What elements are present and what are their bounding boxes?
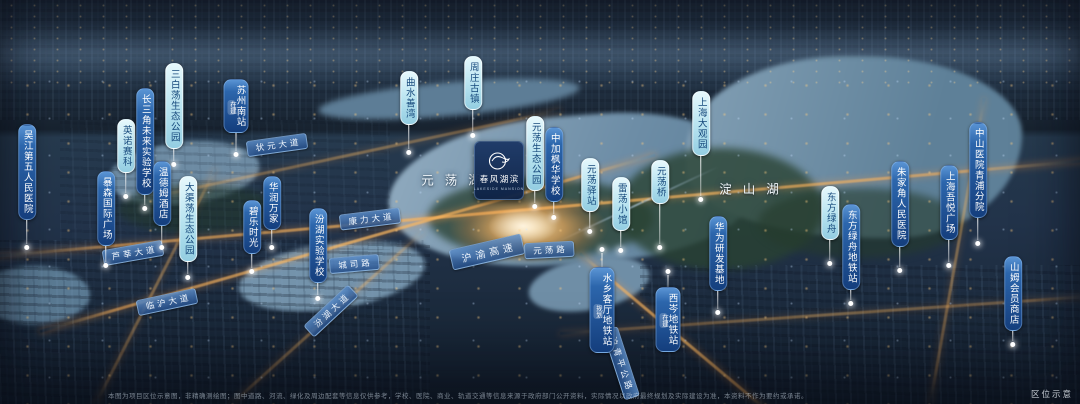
leader-line [554,202,555,214]
poi-status-tag: 在建 [228,100,236,115]
poi-label-box: 朱家角人民医院 [891,161,909,247]
poi-label-box: 吴江第五人民医院 [18,124,36,220]
poi-label: 英诺赛科 [117,119,135,200]
location-map: 春风湖滨 LAKESIDE MANSION 元荡湖淀山湖 状元大道康力大道城司路… [0,0,1080,404]
poi-label: 华润万家 [263,176,281,251]
disclaimer-text: 本图为项目区位示意图，非精确测绘图；图中道路、河流、绿化及周边配套等信息仅供参考… [108,390,808,400]
poi-label-text: 汾湖实验学校 [313,214,323,277]
location-dot-icon [1011,342,1016,347]
location-dot-icon [600,247,605,252]
poi-label-text: 元荡驿站 [585,164,595,206]
location-dot-icon [658,245,663,250]
leader-line [535,191,536,203]
road-label: 状元大道 [246,133,309,157]
poi-label: 大渠荡生态公园 [179,176,197,281]
poi-label-text: 周庄古镇 [468,62,478,104]
poi-label-box: 大渠荡生态公园 [179,176,197,262]
poi-label: 山姆会员商店 [1004,256,1022,348]
leader-line [602,253,603,267]
poi-label-text: 东方绿舟地铁站 [846,210,856,284]
location-dot-icon [160,245,165,250]
poi-label-text: 华为研发基地 [713,222,723,285]
poi-label: 中加枫华学校 [545,127,563,221]
leader-line [236,133,237,151]
poi-label: 上海吾悦广场 [940,165,958,269]
poi-label-text: 元荡生态公园 [530,122,540,185]
poi-label: 元荡驿站 [581,158,599,235]
poi-label: 长三角未来实验学校 [136,88,154,212]
poi-label: 东方绿舟地铁站 [842,204,860,307]
leader-line [162,226,163,244]
poi-label-box: 长三角未来实验学校 [136,88,154,195]
poi-label-box: 中山医院青浦分院 [969,122,987,218]
leader-line [188,262,189,274]
leader-line [27,220,28,244]
location-dot-icon [124,194,129,199]
location-dot-icon [947,263,952,268]
location-dot-icon [898,268,903,273]
poi-label-box: 山姆会员商店 [1004,256,1022,331]
poi-label-box: 中加枫华学校 [545,127,563,202]
location-dot-icon [828,261,833,266]
poi-label: 暴森国际广场 [97,171,115,269]
location-dot-icon [104,263,109,268]
poi-label: 曲水善湾 [400,71,418,156]
leader-line [145,195,146,205]
leader-line [621,231,622,247]
project-name: 春风湖滨 [478,173,520,185]
poi-label-box: 曲水善湾 [400,71,418,125]
project-name-en: LAKESIDE MANSION [474,187,524,191]
leader-line [660,204,661,244]
poi-label-box: 雷荡小馆 [612,177,630,231]
poi-label-text: 元荡桥 [655,166,665,198]
park-east-shore [758,188,963,258]
poi-label: 吴江第五人民医院 [18,124,36,251]
location-dot-icon [172,162,177,167]
poi-label-text: 英诺赛科 [121,125,131,167]
leader-line [106,246,107,262]
poi-label-box: 苏州南站在建 [224,79,249,133]
poi-label-box: 温德姆酒店 [153,161,171,226]
leader-line [252,254,253,268]
leader-line [590,212,591,228]
leader-line [473,110,474,132]
poi-label-text: 三白荡生态公园 [169,69,179,143]
poi-label-text: 华润万家 [267,182,277,224]
poi-label: 元荡生态公园 [526,116,544,210]
poi-label-text: 水乡客厅地铁站 [601,273,611,347]
location-dot-icon [25,245,30,250]
leader-line [174,149,175,161]
poi-label-text: 朱家角人民医院 [895,167,905,241]
leader-line [851,290,852,300]
location-dot-icon [143,206,148,211]
poi-label: 碧乐时光 [243,200,261,275]
poi-label-text: 雷荡小馆 [616,183,626,225]
leader-line [718,291,719,309]
location-dot-icon [250,269,255,274]
poi-label-text: 上海大观园 [696,97,706,150]
location-dot-icon [666,269,671,274]
poi-status-tag: 规划 [594,304,602,319]
poi-label-box: 华为研发基地 [709,216,727,291]
poi-label: 苏州南站在建 [224,79,249,158]
poi-label-text: 碧乐时光 [247,206,257,248]
pond-left-edge-water [0,266,90,324]
location-dot-icon [471,133,476,138]
poi-label-box: 三白荡生态公园 [165,63,183,149]
leader-line [949,240,950,262]
location-dot-icon [552,215,557,220]
location-dot-icon [186,275,191,280]
poi-label: 汾湖实验学校 [309,208,327,302]
leader-line [668,275,669,287]
leader-line [830,240,831,260]
poi-label-text: 曲水善湾 [404,77,414,119]
leader-line [272,230,273,244]
poi-label-text: 吴江第五人民医院 [22,130,32,214]
location-dot-icon [716,310,721,315]
poi-label-box: 华润万家 [263,176,281,230]
poi-label: 元荡桥 [651,160,669,251]
poi-label: 周庄古镇 [464,56,482,139]
poi-label-text: 山姆会员商店 [1008,262,1018,325]
location-dot-icon [407,150,412,155]
poi-label: 上海大观园 [692,91,710,203]
poi-label-box: 上海吾悦广场 [940,165,958,240]
road-label: 元荡路 [524,241,574,260]
location-dot-icon [588,229,593,234]
road-label: 临沪大道 [135,288,198,316]
poi-label: 西岑地铁站在建 [656,268,681,352]
poi-label-text: 东方绿舟 [825,192,835,234]
lake-name: 淀山湖 [708,179,790,198]
leader-line [978,218,979,240]
location-dot-icon [270,245,275,250]
poi-label-box: 上海大观园 [692,91,710,156]
leader-line [701,156,702,196]
poi-label: 水乡客厅地铁站规划 [590,246,615,353]
leader-line [409,125,410,149]
swan-logo-icon [487,151,511,171]
leader-line [126,173,127,193]
poi-label-box: 英诺赛科 [117,119,135,173]
leader-line [1013,331,1014,341]
poi-label-box: 东方绿舟 [821,186,839,240]
location-dot-icon [699,197,704,202]
leader-line [900,247,901,267]
poi-label-box: 东方绿舟地铁站 [842,204,860,290]
poi-label-box: 水乡客厅地铁站规划 [590,267,615,353]
poi-label: 朱家角人民医院 [891,161,909,274]
poi-label-text: 苏州南站 [235,85,245,127]
poi-label-text: 中山医院青浦分院 [973,128,983,212]
poi-label-box: 汾湖实验学校 [309,208,327,283]
location-dot-icon [234,152,239,157]
poi-label: 华为研发基地 [709,216,727,316]
poi-label-text: 上海吾悦广场 [944,171,954,234]
poi-label-box: 暴森国际广场 [97,171,115,246]
leader-line [318,283,319,295]
poi-label: 中山医院青浦分院 [969,122,987,247]
road-label: 康力大道 [339,207,402,230]
poi-label: 温德姆酒店 [153,161,171,251]
poi-label-box: 碧乐时光 [243,200,261,254]
poi-label-text: 中加枫华学校 [549,133,559,196]
poi-label: 雷荡小馆 [612,177,630,254]
poi-label-text: 长三角未来实验学校 [140,94,150,189]
project-logo-card: 春风湖滨 LAKESIDE MANSION [474,141,524,200]
poi-label-text: 大渠荡生态公园 [183,182,193,256]
poi-status-tag: 在建 [660,313,668,328]
poi-label-text: 温德姆酒店 [157,167,167,220]
poi-label-box: 西岑地铁站在建 [656,287,681,352]
location-dot-icon [533,204,538,209]
poi-label-box: 元荡驿站 [581,158,599,212]
poi-label: 东方绿舟 [821,186,839,267]
location-dot-icon [976,241,981,246]
poi-label-text: 西岑地铁站 [667,293,677,346]
poi-label-text: 暴森国际广场 [101,177,111,240]
map-corner-label: 区位示意 [1031,388,1073,400]
poi-label: 三白荡生态公园 [165,63,183,168]
location-dot-icon [849,301,854,306]
location-dot-icon [619,248,624,253]
poi-label-box: 周庄古镇 [464,56,482,110]
location-dot-icon [316,296,321,301]
poi-label-box: 元荡生态公园 [526,116,544,191]
poi-label-box: 元荡桥 [651,160,669,204]
